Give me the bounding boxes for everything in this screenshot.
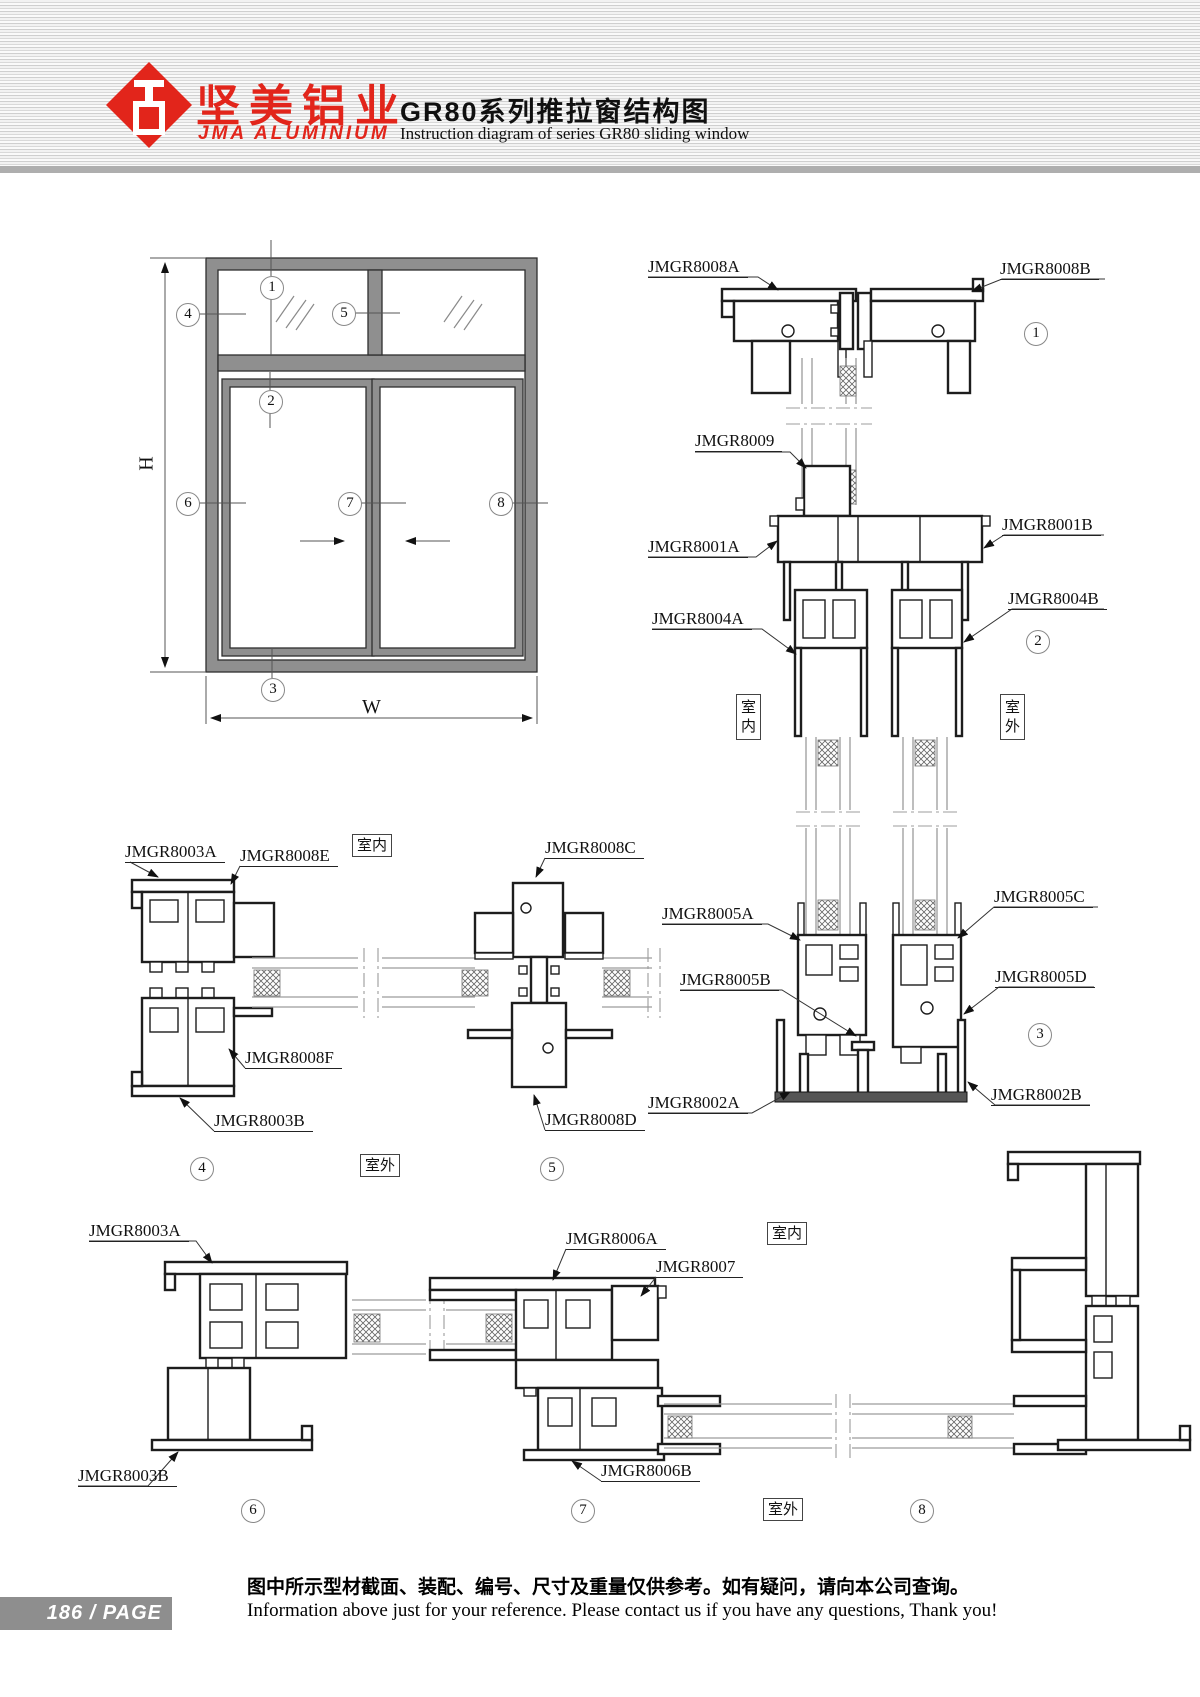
part-label-8001B: JMGR8001B — [1002, 516, 1101, 536]
indoor-box-section7: 室内 — [767, 1222, 807, 1245]
outdoor-box-section2: 室外 — [1000, 694, 1025, 740]
dim-width-label: W — [362, 696, 381, 719]
page-number-badge: 186 / PAGE — [0, 1597, 172, 1630]
callout-2: 2 — [259, 390, 283, 414]
callout-6: 6 — [176, 492, 200, 516]
part-label-8006A: JMGR8006A — [566, 1230, 666, 1250]
section-8-number: 8 — [910, 1499, 934, 1523]
section-3-drawing — [775, 903, 967, 1102]
footer-note-en: Information above just for your referenc… — [247, 1600, 997, 1622]
part-label-8003B-s6: JMGR8003B — [78, 1467, 177, 1487]
section-8-drawing — [1008, 1152, 1190, 1454]
callout-3: 3 — [261, 678, 285, 702]
section-7-number: 7 — [571, 1499, 595, 1523]
part-label-8007: JMGR8007 — [656, 1258, 743, 1278]
outdoor-box-row1: 室外 — [360, 1154, 400, 1177]
catalog-page: 坚美铝业 JMA ALUMINIUM GR80系列推拉窗结构图 Instruct… — [0, 0, 1200, 1697]
part-label-8008B: JMGR8008B — [1000, 260, 1099, 280]
callout-8: 8 — [489, 492, 513, 516]
section-5-drawing — [468, 883, 612, 1087]
callout-1: 1 — [260, 276, 284, 300]
part-label-8005B: JMGR8005B — [680, 971, 779, 991]
part-label-8008F: JMGR8008F — [245, 1049, 342, 1069]
section-5-number: 5 — [540, 1157, 564, 1181]
indoor-box-section4: 室内 — [352, 834, 392, 857]
callout-4: 4 — [176, 303, 200, 327]
callout-5: 5 — [332, 302, 356, 326]
outdoor-box-row2: 室外 — [763, 1498, 803, 1521]
part-label-8009: JMGR8009 — [695, 432, 782, 452]
part-label-8008E: JMGR8008E — [240, 847, 338, 867]
technical-drawing — [0, 175, 1200, 1560]
section-2-drawing — [770, 466, 990, 736]
sash-glass-runs — [796, 737, 957, 935]
part-label-8005D: JMGR8005D — [995, 968, 1095, 988]
part-label-8008D: JMGR8008D — [545, 1111, 645, 1131]
part-label-8002A: JMGR8002A — [648, 1094, 748, 1114]
dim-height-label: H — [136, 456, 159, 470]
part-label-8008C: JMGR8008C — [545, 839, 644, 859]
section-6-number: 6 — [241, 1499, 265, 1523]
section-2-number: 2 — [1026, 630, 1050, 654]
section-1-number: 1 — [1024, 322, 1048, 346]
part-label-8002B: JMGR8002B — [991, 1086, 1090, 1106]
part-label-8005C: JMGR8005C — [994, 888, 1093, 908]
part-label-8005A: JMGR8005A — [662, 905, 762, 925]
part-label-8006B: JMGR8006B — [601, 1462, 700, 1482]
part-label-8004A: JMGR8004A — [652, 610, 752, 630]
part-label-8003B-s4: JMGR8003B — [214, 1112, 313, 1132]
footer-note-cn: 图中所示型材截面、装配、编号、尺寸及重量仅供参考。如有疑问，请向本公司查询。 — [247, 1572, 969, 1599]
part-label-8001A: JMGR8001A — [648, 538, 748, 558]
callout-7: 7 — [338, 492, 362, 516]
section-7-drawing — [430, 1278, 1014, 1460]
page-subtitle: Instruction diagram of series GR80 slidi… — [400, 124, 749, 144]
section-4-number: 4 — [190, 1157, 214, 1181]
header-band-edge — [0, 166, 1200, 173]
part-label-8003A-s4: JMGR8003A — [125, 843, 225, 863]
part-label-8004B: JMGR8004B — [1008, 590, 1107, 610]
part-label-8008A: JMGR8008A — [648, 258, 748, 278]
part-label-8003A-s6: JMGR8003A — [89, 1222, 189, 1242]
indoor-box-section2: 室内 — [736, 694, 761, 740]
brand-name-en: JMA ALUMINIUM — [198, 123, 390, 145]
jma-diamond-logo-icon — [104, 60, 194, 150]
section-3-number: 3 — [1028, 1023, 1052, 1047]
